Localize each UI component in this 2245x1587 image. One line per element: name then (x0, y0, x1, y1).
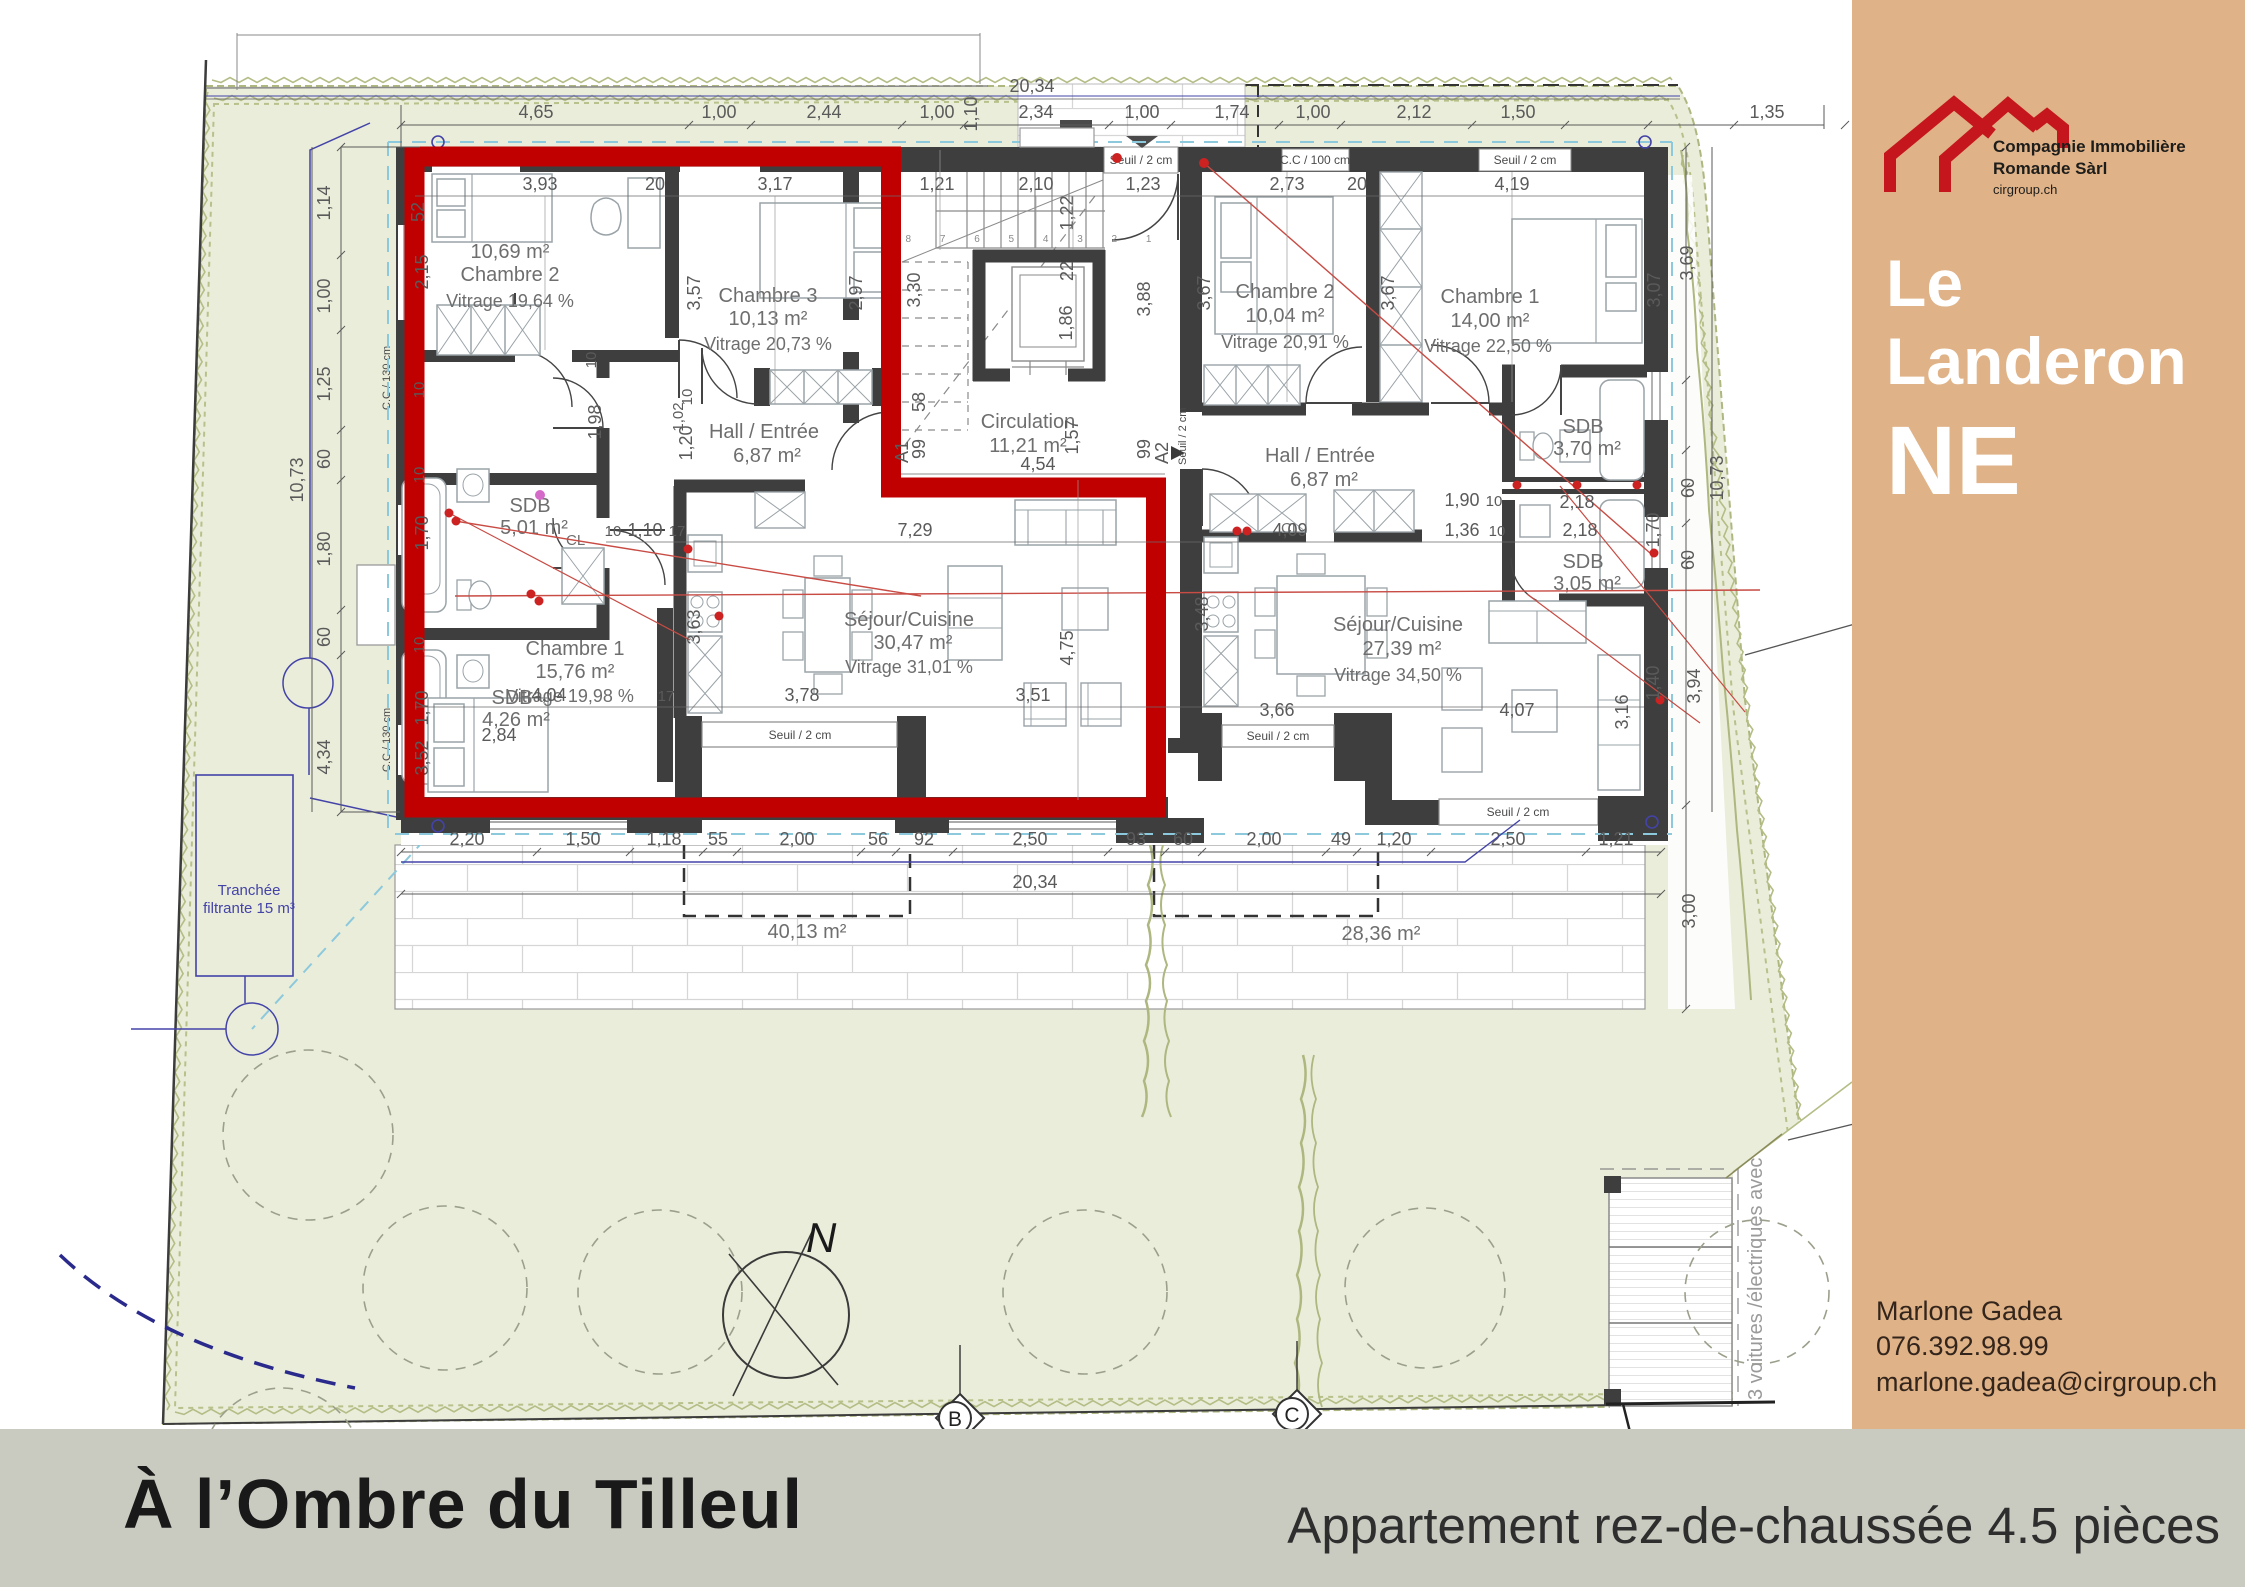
svg-text:17: 17 (669, 523, 686, 540)
svg-text:99: 99 (1134, 439, 1154, 459)
svg-text:10: 10 (605, 523, 622, 540)
svg-text:10: 10 (411, 467, 428, 484)
svg-text:Hall / Entrée: Hall / Entrée (709, 421, 819, 443)
svg-text:Vitrage 19,64 %: Vitrage 19,64 % (446, 291, 574, 311)
svg-text:3,51: 3,51 (1015, 685, 1050, 705)
svg-text:B: B (948, 1408, 962, 1431)
svg-text:NE: NE (1886, 406, 2021, 515)
svg-text:2,20: 2,20 (449, 829, 484, 849)
svg-text:1,90: 1,90 (1444, 490, 1479, 510)
svg-text:A2: A2 (1152, 442, 1172, 464)
svg-text:3,30: 3,30 (904, 272, 924, 307)
svg-text:2,50: 2,50 (1012, 829, 1047, 849)
svg-text:6,87 m²: 6,87 m² (1290, 469, 1358, 491)
svg-text:28,36 m²: 28,36 m² (1342, 923, 1421, 945)
svg-text:10: 10 (583, 352, 600, 369)
svg-text:4,54: 4,54 (1020, 454, 1055, 474)
svg-text:1,74: 1,74 (1214, 102, 1249, 122)
svg-text:1,00: 1,00 (701, 102, 736, 122)
svg-text:Le: Le (1886, 246, 1963, 320)
svg-text:1,50: 1,50 (565, 829, 600, 849)
svg-text:3,94: 3,94 (1684, 668, 1704, 703)
svg-text:Chambre 3: Chambre 3 (719, 285, 818, 307)
svg-text:10: 10 (1486, 493, 1503, 510)
svg-text:30,47 m²: 30,47 m² (874, 632, 953, 654)
svg-text:4,09: 4,09 (1272, 520, 1307, 540)
svg-text:2,10: 2,10 (1018, 174, 1053, 194)
svg-text:20: 20 (1347, 174, 1367, 194)
svg-text:10,13 m²: 10,13 m² (729, 308, 808, 330)
svg-text:Vitrage 34,50 %: Vitrage 34,50 % (1334, 665, 1462, 685)
svg-text:1,70: 1,70 (412, 690, 432, 725)
svg-text:2,97: 2,97 (846, 275, 866, 310)
svg-text:22: 22 (1057, 261, 1077, 281)
svg-text:Romande Sàrl: Romande Sàrl (1993, 159, 2107, 178)
svg-text:5,01 m²: 5,01 m² (500, 517, 568, 539)
svg-text:Appartement rez-de-chaussée 4.: Appartement rez-de-chaussée 4.5 pièces (1287, 1497, 2220, 1554)
svg-text:Seuil / 2 cm: Seuil / 2 cm (769, 728, 832, 742)
svg-text:4,07: 4,07 (1499, 700, 1534, 720)
svg-text:20: 20 (645, 174, 665, 194)
svg-text:Vitrage 22,50 %: Vitrage 22,50 % (1424, 336, 1552, 356)
svg-text:A1: A1 (892, 441, 912, 463)
svg-text:2,00: 2,00 (779, 829, 814, 849)
svg-text:3,05 m²: 3,05 m² (1553, 573, 1621, 595)
svg-text:60: 60 (314, 449, 334, 469)
svg-text:1,14: 1,14 (314, 185, 334, 220)
svg-text:076.392.98.99: 076.392.98.99 (1876, 1331, 2049, 1361)
svg-text:2,34: 2,34 (1018, 102, 1053, 122)
svg-text:3,70 m²: 3,70 m² (1553, 438, 1621, 460)
svg-text:Hall / Entrée: Hall / Entrée (1265, 445, 1375, 467)
svg-text:Vitrage 20,73 %: Vitrage 20,73 % (704, 334, 832, 354)
svg-text:4,04: 4,04 (531, 685, 566, 705)
svg-text:Seuil / 2 cm: Seuil / 2 cm (1247, 729, 1310, 743)
svg-text:17: 17 (658, 688, 675, 705)
svg-text:1,22: 1,22 (1057, 195, 1077, 230)
svg-text:1,18: 1,18 (646, 829, 681, 849)
svg-text:Vitrage 19,98 %: Vitrage 19,98 % (506, 686, 634, 706)
svg-text:1,02: 1,02 (670, 402, 687, 431)
svg-text:Vitrage 20,91 %: Vitrage 20,91 % (1221, 332, 1349, 352)
svg-text:1,00: 1,00 (314, 278, 334, 313)
svg-text:60: 60 (1173, 829, 1193, 849)
svg-text:cirgroup.ch: cirgroup.ch (1993, 182, 2057, 197)
svg-text:3,69: 3,69 (1677, 245, 1697, 280)
svg-text:6,87 m²: 6,87 m² (733, 445, 801, 467)
svg-text:3,07: 3,07 (1644, 272, 1664, 307)
svg-text:3,78: 3,78 (784, 685, 819, 705)
svg-text:93: 93 (1126, 829, 1146, 849)
svg-text:1,57: 1,57 (1062, 419, 1082, 454)
svg-text:4,75: 4,75 (1057, 630, 1077, 665)
svg-text:10,73: 10,73 (287, 457, 307, 502)
svg-text:4,34: 4,34 (314, 739, 334, 774)
svg-text:SDB: SDB (1562, 416, 1603, 438)
svg-text:C.C / 130 cm: C.C / 130 cm (381, 346, 393, 410)
svg-text:N: N (806, 1214, 837, 1261)
svg-text:SDB: SDB (1562, 551, 1603, 573)
svg-text:3,48: 3,48 (1192, 596, 1212, 631)
svg-text:filtrante 15 m³: filtrante 15 m³ (203, 900, 295, 917)
svg-text:60: 60 (314, 627, 334, 647)
svg-text:49: 49 (1331, 829, 1351, 849)
svg-text:15,76 m²: 15,76 m² (536, 661, 615, 683)
svg-text:8 7 6 5 4 3 2 1: 8 7 6 5 4 3 2 1 (906, 234, 1165, 245)
svg-text:10: 10 (411, 382, 428, 399)
svg-text:SDB: SDB (509, 495, 550, 517)
svg-text:14,00 m²: 14,00 m² (1451, 310, 1530, 332)
svg-text:3,17: 3,17 (757, 174, 792, 194)
svg-text:Landeron: Landeron (1886, 324, 2187, 398)
svg-text:2,18: 2,18 (1562, 520, 1597, 540)
svg-text:1,23: 1,23 (1125, 174, 1160, 194)
svg-text:Chambre 1: Chambre 1 (526, 638, 625, 660)
svg-text:1,98: 1,98 (585, 404, 605, 439)
svg-text:1,10: 1,10 (961, 96, 981, 131)
svg-text:92: 92 (914, 829, 934, 849)
svg-text:Chambre 1: Chambre 1 (1441, 286, 1540, 308)
svg-text:99: 99 (909, 439, 929, 459)
svg-text:52: 52 (408, 202, 428, 222)
svg-text:À l’Ombre du Tilleul: À l’Ombre du Tilleul (123, 1465, 803, 1543)
svg-text:56: 56 (868, 829, 888, 849)
svg-text:Seuil / 2 cm: Seuil / 2 cm (1177, 408, 1189, 465)
svg-text:3,67: 3,67 (1378, 275, 1398, 310)
svg-text:C.C / 130 cm: C.C / 130 cm (381, 708, 393, 772)
svg-text:1,21: 1,21 (1598, 829, 1633, 849)
svg-text:10,73: 10,73 (1707, 455, 1727, 500)
svg-text:3,66: 3,66 (1259, 700, 1294, 720)
svg-text:3,88: 3,88 (1134, 281, 1154, 316)
svg-text:C.C / 100 cm: C.C / 100 cm (1280, 153, 1350, 167)
svg-text:7,29: 7,29 (897, 520, 932, 540)
svg-text:2,18: 2,18 (1559, 492, 1594, 512)
svg-text:1,36: 1,36 (1444, 520, 1479, 540)
svg-text:2,00: 2,00 (1246, 829, 1281, 849)
svg-text:1,00: 1,00 (1124, 102, 1159, 122)
svg-text:27,39 m²: 27,39 m² (1363, 638, 1442, 660)
svg-text:60: 60 (1678, 478, 1698, 498)
svg-text:3,63: 3,63 (684, 609, 704, 644)
svg-text:Compagnie Immobilière: Compagnie Immobilière (1993, 137, 2186, 156)
svg-text:10: 10 (411, 637, 428, 654)
svg-text:2,44: 2,44 (806, 102, 841, 122)
svg-text:Seuil / 2 cm: Seuil / 2 cm (1487, 805, 1550, 819)
svg-text:20,34: 20,34 (1012, 872, 1057, 892)
svg-text:2,84: 2,84 (481, 725, 516, 745)
svg-text:60: 60 (1678, 550, 1698, 570)
svg-text:1,21: 1,21 (919, 174, 954, 194)
svg-text:2,15: 2,15 (412, 254, 432, 289)
svg-text:20,34: 20,34 (1009, 76, 1054, 96)
svg-text:4,65: 4,65 (518, 102, 553, 122)
svg-text:1,35: 1,35 (1749, 102, 1784, 122)
svg-text:1,40: 1,40 (1643, 665, 1663, 700)
svg-text:1,10: 1,10 (627, 520, 662, 540)
svg-text:marlone.gadea@cirgroup.ch: marlone.gadea@cirgroup.ch (1876, 1367, 2217, 1397)
svg-text:3,67: 3,67 (1194, 275, 1214, 310)
svg-text:3,57: 3,57 (684, 275, 704, 310)
svg-text:1,86: 1,86 (1056, 305, 1076, 340)
svg-text:Séjour/Cuisine: Séjour/Cuisine (844, 609, 974, 631)
svg-text:1,00: 1,00 (919, 102, 954, 122)
svg-text:40,13 m²: 40,13 m² (768, 921, 847, 943)
svg-text:Vitrage 31,01 %: Vitrage 31,01 % (845, 657, 973, 677)
svg-text:1,00: 1,00 (1295, 102, 1330, 122)
svg-text:58: 58 (909, 392, 929, 412)
svg-text:10: 10 (1489, 523, 1506, 540)
svg-text:10,04 m²: 10,04 m² (1246, 305, 1325, 327)
svg-text:2,12: 2,12 (1396, 102, 1431, 122)
svg-text:1,25: 1,25 (314, 366, 334, 401)
svg-text:Seuil / 2 cm: Seuil / 2 cm (1494, 153, 1557, 167)
svg-text:1,20: 1,20 (1376, 829, 1411, 849)
svg-text:C: C (1284, 1404, 1299, 1427)
svg-text:Chambre 2: Chambre 2 (461, 264, 560, 286)
svg-text:Marlone Gadea: Marlone Gadea (1876, 1296, 2063, 1326)
svg-text:1,50: 1,50 (1500, 102, 1535, 122)
svg-text:10,69 m²: 10,69 m² (471, 241, 550, 263)
svg-text:3,93: 3,93 (522, 174, 557, 194)
svg-text:Séjour/Cuisine: Séjour/Cuisine (1333, 614, 1463, 636)
svg-text:1,80: 1,80 (314, 531, 334, 566)
svg-text:Chambre 2: Chambre 2 (1236, 281, 1335, 303)
svg-text:55: 55 (708, 829, 728, 849)
svg-text:3 voitures /électriques avec: 3 voitures /électriques avec (1745, 1158, 1767, 1400)
svg-text:1,70: 1,70 (1643, 512, 1663, 547)
svg-text:3,52: 3,52 (412, 740, 432, 775)
svg-text:3,16: 3,16 (1612, 694, 1632, 729)
svg-text:Tranchée: Tranchée (218, 882, 281, 899)
svg-text:1,70: 1,70 (412, 515, 432, 550)
svg-text:3,00: 3,00 (1679, 893, 1699, 928)
